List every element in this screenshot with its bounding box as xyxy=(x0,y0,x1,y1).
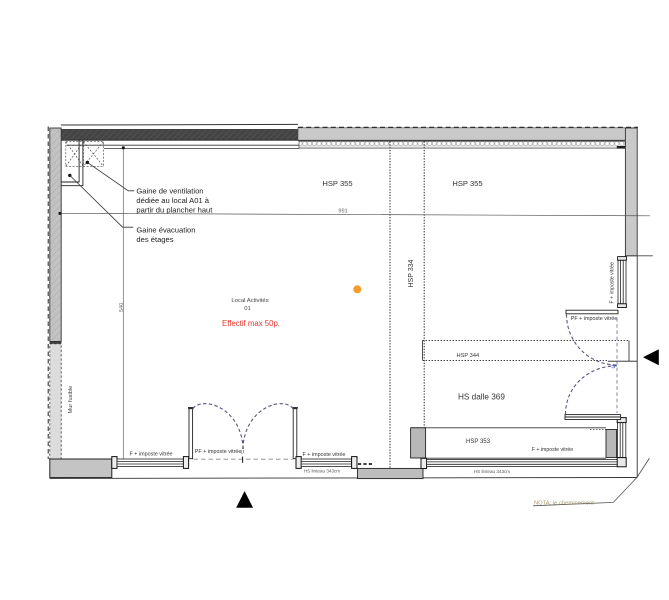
svg-text:PF + imposte vitrée: PF + imposte vitrée xyxy=(195,449,242,455)
svg-text:F + imposte vitrée: F + imposte vitrée xyxy=(130,452,173,458)
svg-text:991: 991 xyxy=(338,208,347,214)
svg-text:F + imposte vitrée: F + imposte vitrée xyxy=(610,262,616,303)
svg-text:HS linteau 343cm: HS linteau 343cm xyxy=(304,469,340,474)
svg-text:F + imposte vitrée: F + imposte vitrée xyxy=(532,447,573,453)
svg-text:Mur fusible: Mur fusible xyxy=(68,386,74,414)
svg-text:HS dalle 369: HS dalle 369 xyxy=(458,392,505,401)
svg-text:HSP 334: HSP 334 xyxy=(408,260,415,288)
svg-text:F + imposte vitrée: F + imposte vitrée xyxy=(303,452,346,458)
svg-text:Effectif max 50p.: Effectif max 50p. xyxy=(222,319,280,328)
svg-text:HS linteau 343cm: HS linteau 343cm xyxy=(474,469,510,474)
svg-text:01: 01 xyxy=(244,306,251,312)
svg-text:Gaine de ventilation: Gaine de ventilation xyxy=(136,186,203,195)
svg-text:Gaine évacuation: Gaine évacuation xyxy=(136,225,195,234)
svg-text:HSP 344: HSP 344 xyxy=(457,353,480,359)
svg-text:PF + imposte vitrée: PF + imposte vitrée xyxy=(571,316,618,322)
svg-text:des étages: des étages xyxy=(136,235,173,244)
svg-text:540: 540 xyxy=(119,303,125,312)
svg-text:NOTA: le cheminement: NOTA: le cheminement xyxy=(534,501,594,507)
svg-text:HSP 353: HSP 353 xyxy=(466,439,491,445)
svg-text:Local Activités: Local Activités xyxy=(231,298,268,304)
svg-text:u: u xyxy=(610,365,617,369)
svg-text:HSP 355: HSP 355 xyxy=(452,179,482,188)
svg-text:partir du plancher haut: partir du plancher haut xyxy=(136,205,213,214)
svg-text:dédiée au local A01 à: dédiée au local A01 à xyxy=(136,196,209,205)
svg-text:HSP 355: HSP 355 xyxy=(322,179,352,188)
